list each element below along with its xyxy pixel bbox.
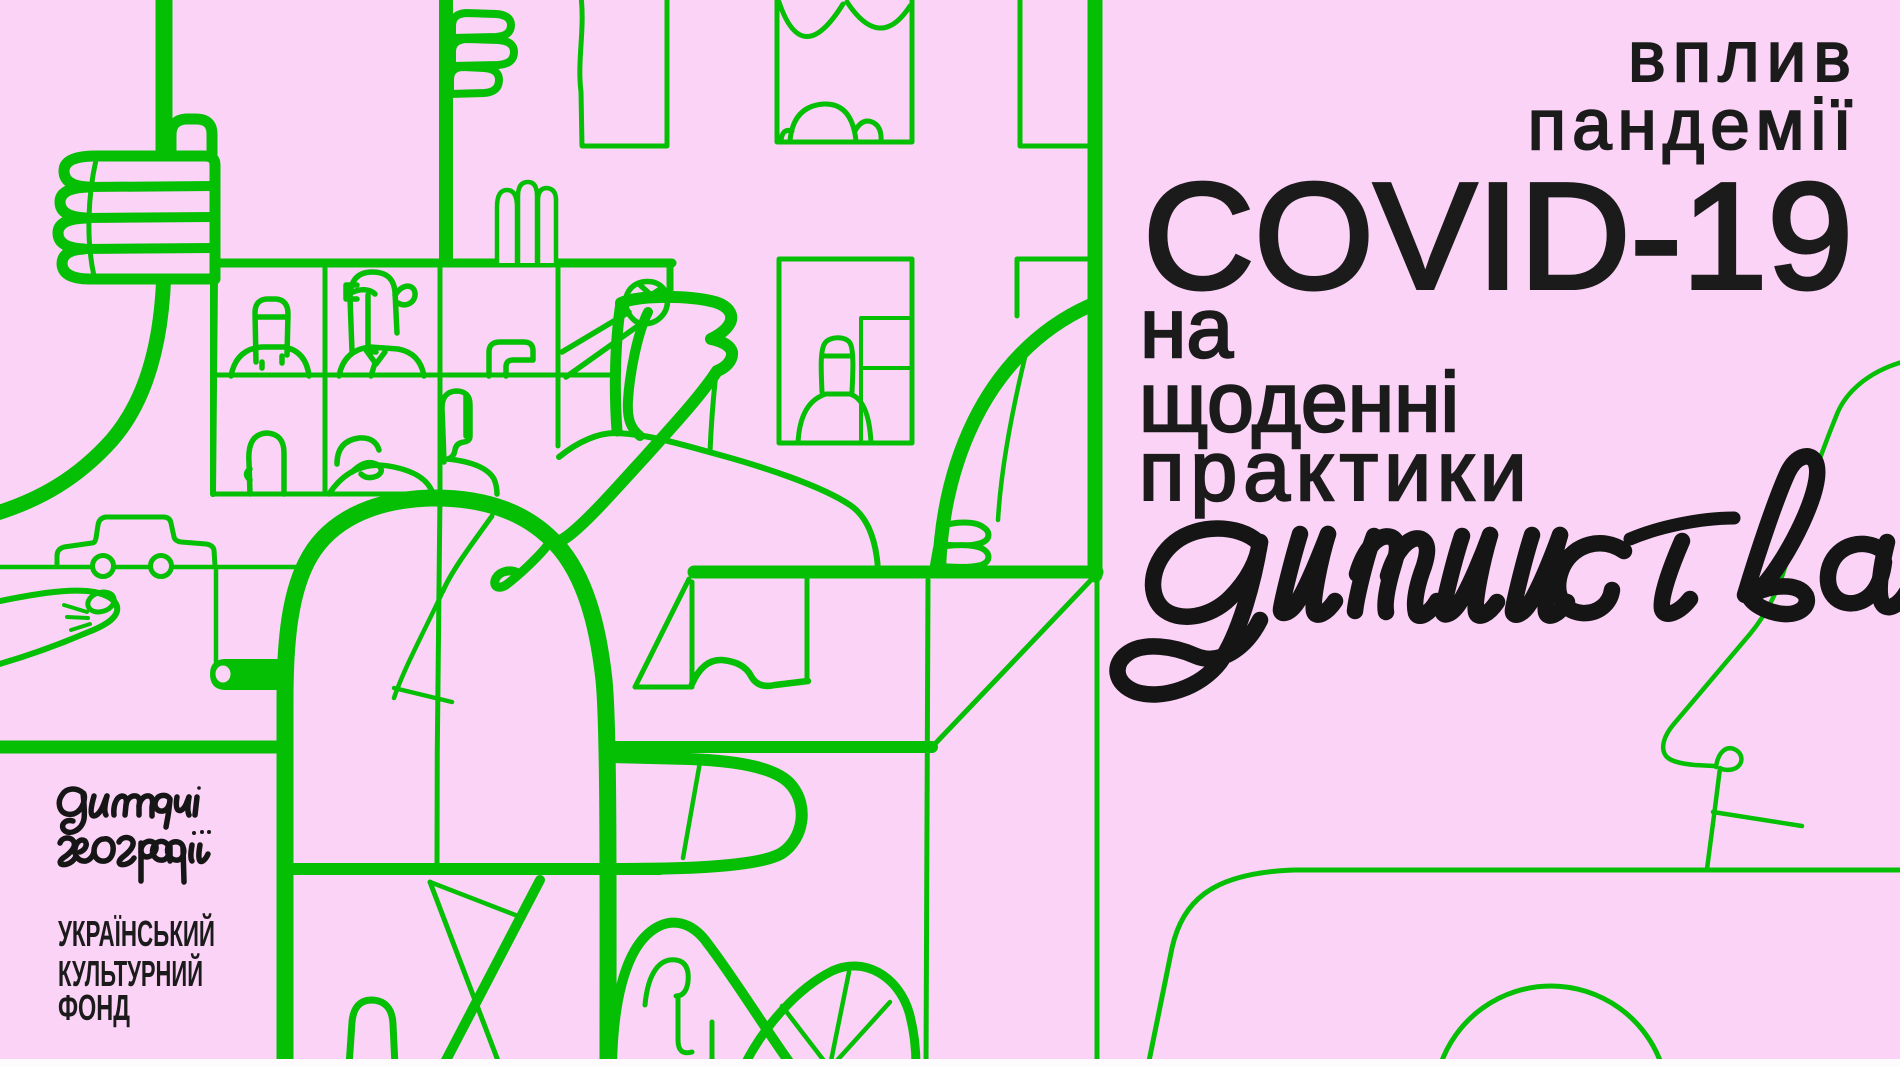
svg-text:практики: практики <box>1139 424 1533 518</box>
svg-text:УКРАЇНСЬКИЙ: УКРАЇНСЬКИЙ <box>58 912 215 954</box>
svg-text:ФОНД: ФОНД <box>58 987 130 1028</box>
svg-text:COVID-19: COVID-19 <box>1143 151 1853 320</box>
